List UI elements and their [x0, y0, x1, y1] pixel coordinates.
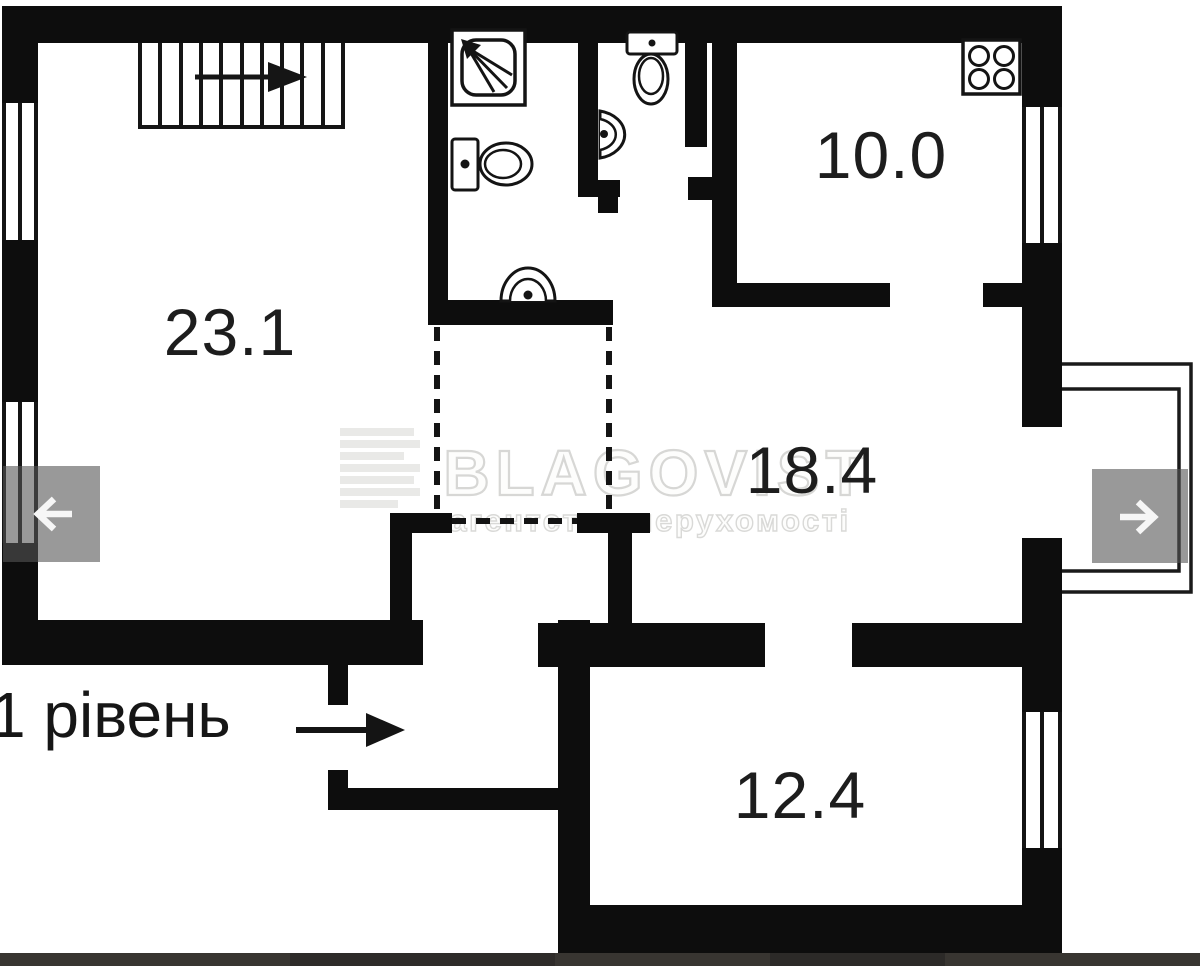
- nav-next-button[interactable]: [1092, 469, 1188, 563]
- stove-icon: [963, 40, 1020, 94]
- window-left-top: [2, 103, 38, 240]
- room-label-23-1: 23.1: [164, 295, 296, 369]
- floor-plan: BLAGOVIST агентство нерухомості: [0, 0, 1200, 966]
- shower-icon: [452, 30, 525, 105]
- bottom-bar: [0, 953, 1200, 966]
- room-label-18-4: 18.4: [746, 433, 878, 507]
- window-bedroom: [1022, 712, 1062, 848]
- nav-prev-button[interactable]: [3, 466, 100, 562]
- room-label-12-4: 12.4: [734, 758, 866, 832]
- room-label-10-0: 10.0: [815, 118, 947, 192]
- level-label: 1 рівень: [0, 679, 231, 751]
- window-kitchen: [1022, 107, 1062, 243]
- toilet-icon: [452, 139, 532, 190]
- watermark-logo: [340, 428, 420, 508]
